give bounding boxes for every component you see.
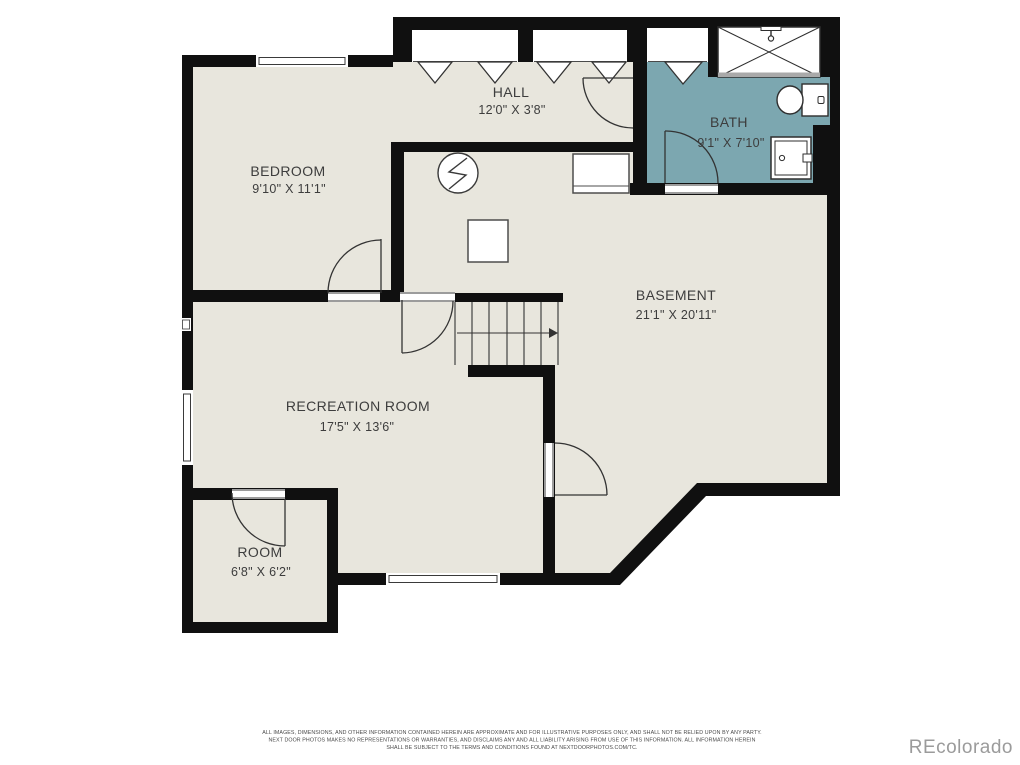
sink-faucet-icon	[803, 154, 812, 162]
basement-label: BASEMENT	[636, 287, 716, 303]
utility-box	[468, 220, 508, 262]
room-dims: 6'8" X 6'2"	[231, 565, 291, 579]
wall-bath-bottom	[630, 183, 813, 195]
bath-label: BATH	[710, 114, 748, 130]
hall-closet-1-floor	[412, 30, 518, 62]
left-wall-vent	[181, 318, 191, 331]
bedroom-label: BEDROOM	[250, 163, 325, 179]
electrical-panel-icon	[438, 153, 478, 193]
bedroom-window	[256, 55, 348, 67]
basement-dims: 21'1" X 20'11"	[636, 308, 717, 322]
toilet-bowl	[777, 86, 803, 114]
disclaimer-line-3: SHALL BE SUBJECT TO THE TERMS AND CONDIT…	[386, 745, 637, 751]
hall-label: HALL	[493, 84, 530, 100]
wall-closet-left	[393, 17, 412, 62]
disclaimer-line-1: ALL IMAGES, DIMENSIONS, AND OTHER INFORM…	[262, 730, 762, 736]
wall-room-right	[327, 488, 338, 633]
toilet	[777, 84, 828, 116]
disclaimer-line-2: NEXT DOOR PHOTOS MAKES NO REPRESENTATION…	[268, 738, 755, 744]
small-room-floor	[193, 500, 327, 622]
appliance-box	[573, 154, 629, 193]
room-label: ROOM	[237, 544, 282, 560]
window-glass	[386, 573, 500, 585]
window-glass	[181, 390, 193, 465]
footer: ALL IMAGES, DIMENSIONS, AND OTHER INFORM…	[262, 730, 1013, 758]
recreation-window-left	[181, 390, 193, 465]
bath-dims: 9'1" X 7'10"	[697, 136, 764, 150]
wall-bedroom-right	[391, 142, 404, 302]
toilet-flush-button	[818, 97, 824, 104]
wall-shower-left	[708, 17, 718, 77]
bath-closet-floor	[647, 28, 708, 62]
hall-closet-2-floor	[533, 30, 627, 62]
floor-plan-page: BEDROOM 9'10" X 11'1" HALL 12'0" X 3'8" …	[0, 0, 1020, 765]
recreation-dims: 17'5" X 13'6"	[320, 420, 395, 434]
shower	[718, 27, 820, 78]
bath-sink	[771, 137, 812, 179]
bedroom-dims: 9'10" X 11'1"	[252, 182, 326, 196]
wall-bath-left	[633, 55, 647, 183]
shower-curb	[718, 73, 820, 78]
hall-dims: 12'0" X 3'8"	[478, 103, 545, 117]
recreation-label: RECREATION ROOM	[286, 398, 430, 414]
wall-hall-bottom	[391, 142, 647, 152]
wall-stairs-bottom	[468, 365, 555, 377]
floor-plan-canvas: BEDROOM 9'10" X 11'1" HALL 12'0" X 3'8" …	[0, 0, 1020, 765]
recreation-window-bottom	[386, 573, 500, 585]
wall-closet-div-1	[518, 17, 533, 62]
window-glass	[256, 55, 348, 67]
recolorado-watermark: REcolorado	[909, 737, 1013, 758]
